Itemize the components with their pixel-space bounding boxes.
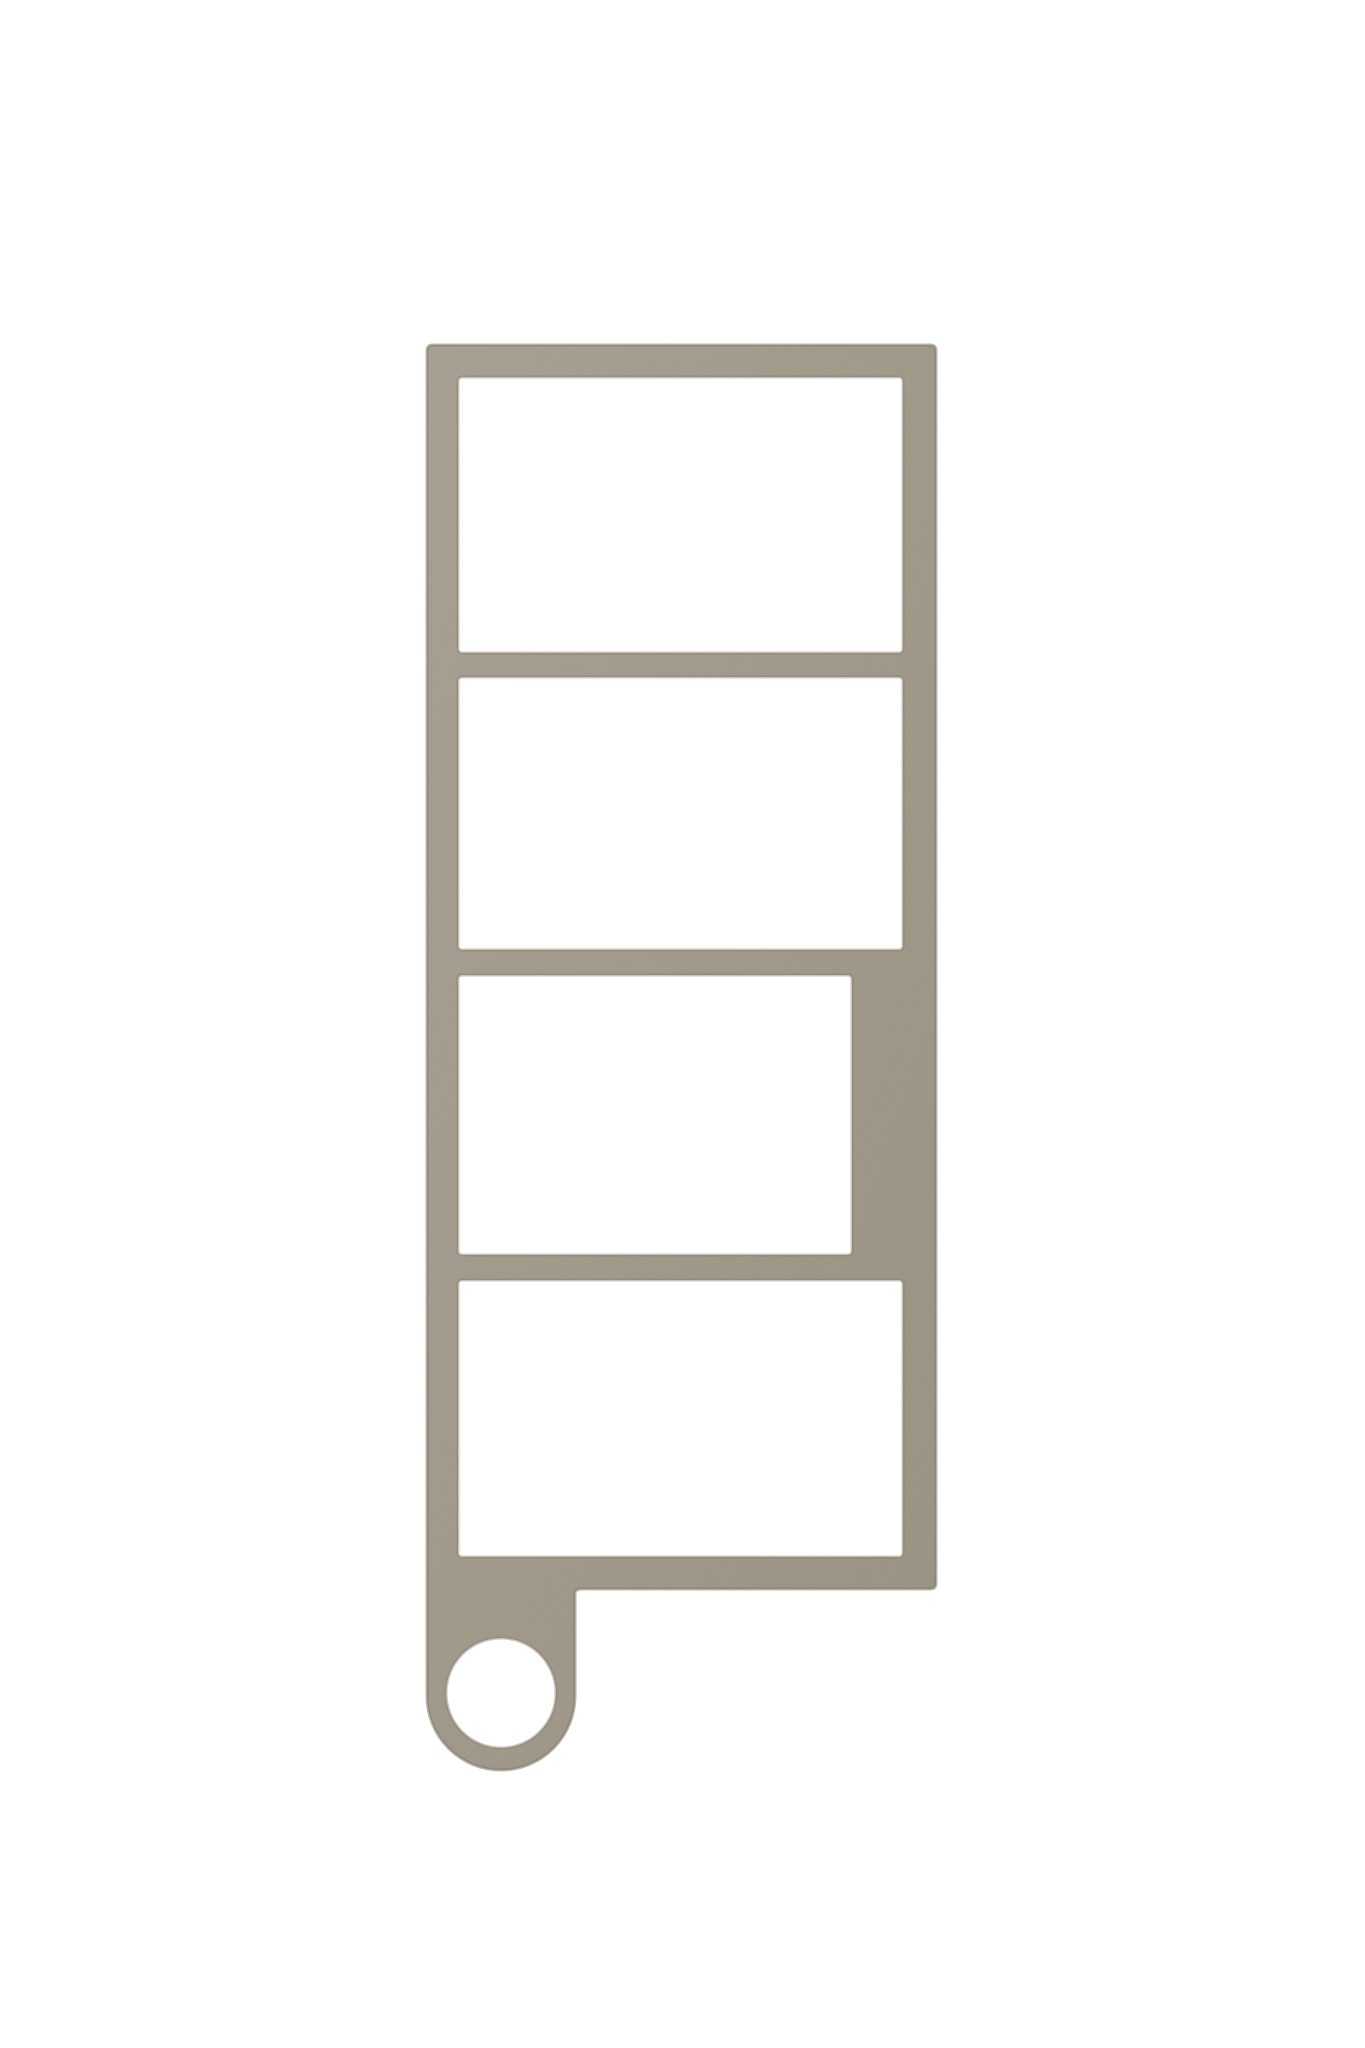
window-opening-1 <box>458 377 903 653</box>
window-opening-2 <box>458 677 903 950</box>
render-stage <box>0 0 1365 2048</box>
keyring-hole <box>446 1638 556 1748</box>
window-opening-3 <box>458 975 852 1255</box>
window-opening-4 <box>458 1280 903 1557</box>
keychain-render <box>0 0 1365 2048</box>
window-openings <box>446 377 903 1748</box>
